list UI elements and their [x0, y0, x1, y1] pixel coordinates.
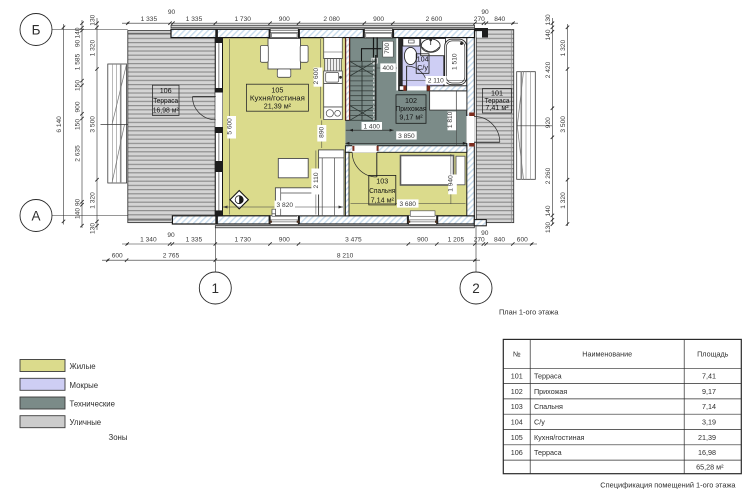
svg-text:2 600: 2 600 [313, 68, 320, 85]
svg-text:Спецификация помещений 1-ого э: Спецификация помещений 1-ого этажа [600, 481, 736, 490]
svg-text:7,41: 7,41 [702, 372, 716, 381]
svg-text:2 420: 2 420 [545, 61, 552, 78]
svg-text:Жилые: Жилые [70, 362, 96, 371]
svg-text:№: № [513, 350, 521, 359]
svg-text:2 110: 2 110 [428, 78, 444, 85]
svg-text:С/у: С/у [534, 418, 545, 427]
svg-text:3 820: 3 820 [277, 202, 294, 209]
svg-text:2 600: 2 600 [426, 16, 443, 23]
svg-text:400: 400 [382, 65, 393, 72]
svg-text:1 810: 1 810 [447, 111, 454, 128]
svg-text:План 1-ого этажа: План 1-ого этажа [499, 308, 559, 317]
svg-text:600: 600 [112, 253, 123, 260]
svg-text:700: 700 [384, 43, 391, 54]
svg-text:1 400: 1 400 [363, 123, 380, 130]
svg-text:90: 90 [168, 9, 176, 16]
svg-text:Наименование: Наименование [582, 350, 632, 359]
svg-text:102: 102 [511, 387, 523, 396]
svg-text:2 765: 2 765 [163, 253, 180, 260]
svg-text:130: 130 [545, 14, 552, 25]
svg-text:С/у: С/у [417, 63, 428, 72]
svg-text:90: 90 [481, 230, 489, 237]
svg-text:1 335: 1 335 [186, 236, 203, 243]
svg-text:1 205: 1 205 [448, 236, 465, 243]
svg-text:Терраса: Терраса [534, 448, 562, 457]
svg-text:9,17: 9,17 [702, 387, 716, 396]
svg-text:130: 130 [90, 14, 97, 25]
svg-text:1 320: 1 320 [560, 40, 567, 57]
svg-text:8 210: 8 210 [337, 253, 354, 260]
svg-text:105: 105 [511, 433, 523, 442]
svg-text:140: 140 [75, 208, 82, 219]
svg-text:Зоны: Зоны [109, 433, 128, 442]
svg-text:90: 90 [481, 9, 489, 16]
svg-text:7,14: 7,14 [702, 402, 716, 411]
svg-text:Б: Б [32, 23, 41, 38]
svg-text:Терраса: Терраса [153, 96, 178, 105]
svg-text:1 340: 1 340 [140, 236, 157, 243]
svg-text:3 680: 3 680 [399, 201, 416, 208]
svg-text:103: 103 [511, 402, 523, 411]
svg-text:270: 270 [474, 16, 485, 23]
svg-text:6 140: 6 140 [56, 116, 63, 133]
svg-text:840: 840 [494, 236, 505, 243]
svg-text:103: 103 [376, 176, 388, 185]
svg-text:9,17 м²: 9,17 м² [399, 112, 423, 121]
svg-text:1 320: 1 320 [560, 192, 567, 209]
svg-text:3 475: 3 475 [345, 236, 362, 243]
svg-text:1 940: 1 940 [448, 175, 455, 192]
svg-text:900: 900 [373, 16, 384, 23]
svg-text:21,39 м²: 21,39 м² [264, 101, 292, 110]
svg-text:1 320: 1 320 [90, 192, 97, 209]
svg-text:Спальня: Спальня [534, 402, 563, 411]
svg-text:900: 900 [75, 101, 82, 112]
svg-text:130: 130 [90, 223, 97, 234]
svg-text:140: 140 [545, 205, 552, 216]
svg-text:90: 90 [75, 199, 82, 207]
svg-text:2 260: 2 260 [545, 167, 552, 184]
svg-text:106: 106 [511, 448, 523, 457]
svg-text:840: 840 [494, 16, 505, 23]
svg-text:Терраса: Терраса [534, 372, 562, 381]
svg-text:Спальня: Спальня [369, 186, 395, 195]
svg-text:1 335: 1 335 [186, 16, 203, 23]
svg-text:140: 140 [545, 29, 552, 40]
svg-text:106: 106 [160, 86, 172, 95]
svg-text:5 600: 5 600 [226, 118, 233, 135]
svg-text:150: 150 [75, 119, 82, 130]
svg-text:65,28 м²: 65,28 м² [696, 463, 724, 472]
svg-text:270: 270 [474, 236, 485, 243]
svg-text:21,39: 21,39 [698, 433, 716, 442]
svg-text:90: 90 [167, 232, 175, 239]
svg-text:600: 600 [517, 236, 528, 243]
svg-text:1 335: 1 335 [141, 16, 158, 23]
svg-text:130: 130 [545, 222, 552, 233]
svg-text:900: 900 [279, 236, 290, 243]
svg-text:150: 150 [75, 80, 82, 91]
svg-text:7,41 м²: 7,41 м² [485, 103, 509, 112]
svg-text:900: 900 [417, 236, 428, 243]
svg-text:А: А [31, 209, 40, 224]
svg-text:Уличные: Уличные [70, 418, 102, 427]
svg-text:3 500: 3 500 [90, 116, 97, 133]
svg-text:Кухня/гостиная: Кухня/гостиная [534, 433, 585, 442]
svg-text:2: 2 [472, 281, 480, 296]
svg-text:Технические: Технические [70, 400, 115, 409]
svg-text:2 080: 2 080 [323, 16, 340, 23]
svg-text:16,98: 16,98 [698, 448, 716, 457]
svg-text:Площадь: Площадь [697, 350, 729, 359]
svg-text:3 850: 3 850 [398, 133, 415, 140]
svg-text:140: 140 [75, 27, 82, 38]
svg-text:2 110: 2 110 [313, 172, 320, 188]
svg-text:104: 104 [511, 418, 523, 427]
svg-text:1 730: 1 730 [234, 236, 251, 243]
svg-text:920: 920 [545, 117, 552, 128]
svg-text:3,19: 3,19 [702, 418, 716, 427]
svg-text:16,98 м²: 16,98 м² [153, 105, 180, 114]
svg-text:1 510: 1 510 [452, 53, 459, 70]
svg-text:Мокрые: Мокрые [70, 381, 99, 390]
svg-text:101: 101 [511, 372, 523, 381]
svg-text:1 585: 1 585 [75, 53, 82, 70]
svg-text:900: 900 [279, 16, 290, 23]
svg-text:1 730: 1 730 [234, 16, 251, 23]
svg-text:Прихожая: Прихожая [534, 387, 567, 396]
svg-text:90: 90 [75, 40, 82, 48]
svg-text:1 320: 1 320 [90, 40, 97, 57]
svg-text:3 500: 3 500 [560, 116, 567, 133]
svg-text:1: 1 [212, 281, 220, 296]
svg-text:2 635: 2 635 [75, 145, 82, 162]
svg-text:890: 890 [319, 126, 326, 137]
